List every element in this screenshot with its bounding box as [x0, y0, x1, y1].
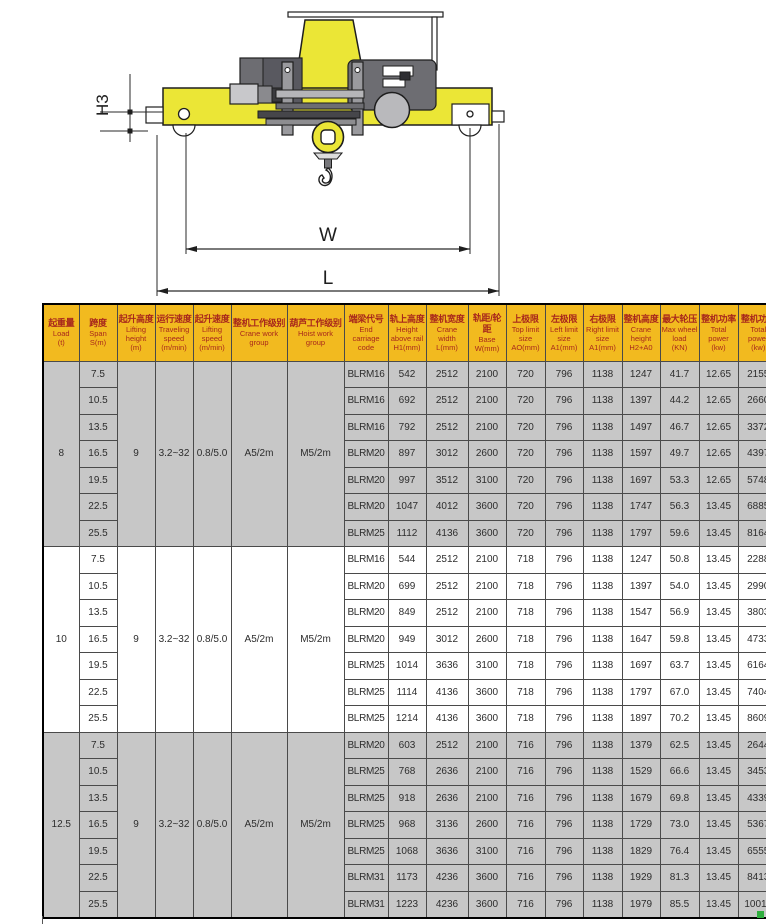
- max-wheel-load-cell: 63.7: [660, 653, 699, 680]
- traveling-speed-cell: 3.2~32: [155, 547, 193, 733]
- crane-spec-table: 起重量Load(t)跨度SpanS(m)起升高度Lifting height(m…: [42, 303, 766, 919]
- top-limit-cell: 718: [506, 679, 545, 706]
- span-cell: 19.5: [79, 838, 117, 865]
- left-limit-cell: 796: [545, 467, 583, 494]
- h1-cell: 544: [388, 547, 426, 574]
- end-carriage-code-cell: BLRM25: [344, 653, 388, 680]
- total-power2-cell: 3453: [738, 759, 766, 786]
- crane-height-cell: 1497: [622, 414, 660, 441]
- top-limit-cell: 716: [506, 865, 545, 892]
- crane-work-group-cell: A5/2m: [231, 732, 287, 918]
- col-header-2: 起升高度Lifting height(m): [117, 304, 155, 361]
- right-limit-cell: 1138: [583, 785, 622, 812]
- crane-width-cell: 3636: [426, 653, 468, 680]
- total-power-cell: 12.65: [699, 361, 738, 388]
- total-power-cell: 13.45: [699, 838, 738, 865]
- total-power2-cell: 8413: [738, 865, 766, 892]
- right-limit-cell: 1138: [583, 706, 622, 733]
- top-limit-cell: 720: [506, 467, 545, 494]
- total-power2-cell: 2990: [738, 573, 766, 600]
- right-limit-cell: 1138: [583, 865, 622, 892]
- left-limit-cell: 796: [545, 361, 583, 388]
- max-wheel-load-cell: 70.2: [660, 706, 699, 733]
- h1-cell: 997: [388, 467, 426, 494]
- span-cell: 16.5: [79, 812, 117, 839]
- col-header-15: 最大轮压Max wheel load(KN): [660, 304, 699, 361]
- end-carriage-code-cell: BLRM20: [344, 573, 388, 600]
- col-header-4: 起升速度Lifting speed(m/min): [193, 304, 231, 361]
- base-cell: 2100: [468, 785, 506, 812]
- lifting-height-cell: 9: [117, 547, 155, 733]
- crane-height-cell: 1929: [622, 865, 660, 892]
- lifting-speed-cell: 0.8/5.0: [193, 361, 231, 547]
- h1-cell: 897: [388, 441, 426, 468]
- col-header-8: 轨上高度Height above railH1(mm): [388, 304, 426, 361]
- left-limit-cell: 796: [545, 441, 583, 468]
- l-label: L: [323, 268, 334, 289]
- left-limit-cell: 796: [545, 732, 583, 759]
- right-limit-cell: 1138: [583, 759, 622, 786]
- span-cell: 22.5: [79, 865, 117, 892]
- crane-height-cell: 1729: [622, 812, 660, 839]
- span-cell: 22.5: [79, 679, 117, 706]
- right-limit-cell: 1138: [583, 891, 622, 918]
- max-wheel-load-cell: 54.0: [660, 573, 699, 600]
- max-wheel-load-cell: 62.5: [660, 732, 699, 759]
- end-carriage-code-cell: BLRM20: [344, 494, 388, 521]
- base-cell: 3600: [468, 891, 506, 918]
- h1-cell: 603: [388, 732, 426, 759]
- right-limit-cell: 1138: [583, 520, 622, 547]
- crane-width-cell: 2512: [426, 547, 468, 574]
- top-limit-cell: 716: [506, 785, 545, 812]
- crane-width-cell: 2636: [426, 785, 468, 812]
- base-cell: 2600: [468, 812, 506, 839]
- table-row: 12.57.593.2~320.8/5.0A5/2mM5/2mBLRM20603…: [43, 732, 766, 759]
- total-power-cell: 12.65: [699, 441, 738, 468]
- base-cell: 3100: [468, 838, 506, 865]
- right-limit-cell: 1138: [583, 812, 622, 839]
- top-limit-cell: 720: [506, 414, 545, 441]
- h1-cell: 1214: [388, 706, 426, 733]
- span-cell: 13.5: [79, 600, 117, 627]
- end-carriage-code-cell: BLRM25: [344, 838, 388, 865]
- col-header-6: 葫芦工作级别Hoist work group: [287, 304, 344, 361]
- left-limit-cell: 796: [545, 838, 583, 865]
- end-carriage-code-cell: BLRM31: [344, 865, 388, 892]
- top-limit-cell: 720: [506, 361, 545, 388]
- right-limit-cell: 1138: [583, 388, 622, 415]
- hook-block: [313, 122, 344, 186]
- right-limit-cell: 1138: [583, 626, 622, 653]
- crane-width-cell: 3636: [426, 838, 468, 865]
- h1-cell: 699: [388, 573, 426, 600]
- crane-height-cell: 1747: [622, 494, 660, 521]
- max-wheel-load-cell: 49.7: [660, 441, 699, 468]
- load-cell-group-1: 10: [43, 547, 79, 733]
- h1-cell: 1114: [388, 679, 426, 706]
- span-cell: 7.5: [79, 547, 117, 574]
- total-power-cell: 13.45: [699, 891, 738, 918]
- end-carriage-code-cell: BLRM25: [344, 520, 388, 547]
- total-power-cell: 13.45: [699, 679, 738, 706]
- scan-artifact-cropline: [42, 916, 43, 924]
- top-limit-cell: 720: [506, 441, 545, 468]
- top-limit-cell: 718: [506, 626, 545, 653]
- crane-height-cell: 1797: [622, 679, 660, 706]
- crane-spec-sheet: H3 W L: [0, 0, 766, 924]
- hoist-motor: [230, 84, 258, 104]
- crane-diagram: H3 W L: [0, 0, 766, 302]
- h1-cell: 768: [388, 759, 426, 786]
- load-cell-group-2: 12.5: [43, 732, 79, 918]
- base-cell: 3600: [468, 520, 506, 547]
- total-power2-cell: 6885: [738, 494, 766, 521]
- top-limit-cell: 716: [506, 759, 545, 786]
- crane-width-cell: 3012: [426, 626, 468, 653]
- max-wheel-load-cell: 85.5: [660, 891, 699, 918]
- right-limit-cell: 1138: [583, 414, 622, 441]
- top-limit-cell: 716: [506, 838, 545, 865]
- span-cell: 7.5: [79, 732, 117, 759]
- h1-cell: 949: [388, 626, 426, 653]
- base-cell: 2100: [468, 547, 506, 574]
- max-wheel-load-cell: 56.9: [660, 600, 699, 627]
- total-power2-cell: 4733: [738, 626, 766, 653]
- total-power2-cell: 4339: [738, 785, 766, 812]
- h1-cell: 1173: [388, 865, 426, 892]
- crane-work-group-cell: A5/2m: [231, 361, 287, 547]
- cable-drum: [375, 93, 410, 128]
- total-power2-cell: 2660: [738, 388, 766, 415]
- crane-width-cell: 2512: [426, 732, 468, 759]
- col-header-14: 整机高度Crane heightH2+A0: [622, 304, 660, 361]
- top-limit-cell: 718: [506, 706, 545, 733]
- dimension-w: W: [186, 225, 470, 252]
- base-cell: 3100: [468, 467, 506, 494]
- total-power2-cell: 4397: [738, 441, 766, 468]
- base-cell: 3100: [468, 653, 506, 680]
- right-limit-cell: 1138: [583, 441, 622, 468]
- total-power2-cell: 2155: [738, 361, 766, 388]
- max-wheel-load-cell: 41.7: [660, 361, 699, 388]
- span-cell: 13.5: [79, 414, 117, 441]
- total-power2-cell: 5367: [738, 812, 766, 839]
- base-cell: 2100: [468, 600, 506, 627]
- left-limit-cell: 796: [545, 706, 583, 733]
- h1-cell: 692: [388, 388, 426, 415]
- left-limit-cell: 796: [545, 494, 583, 521]
- top-limit-cell: 716: [506, 812, 545, 839]
- total-power2-cell: 3803: [738, 600, 766, 627]
- h1-cell: 849: [388, 600, 426, 627]
- top-limit-cell: 720: [506, 520, 545, 547]
- crane-wheel-left: [173, 125, 195, 136]
- base-cell: 2100: [468, 759, 506, 786]
- crane-height-cell: 1397: [622, 573, 660, 600]
- span-cell: 10.5: [79, 388, 117, 415]
- end-carriage-code-cell: BLRM16: [344, 361, 388, 388]
- crane-work-group-cell: A5/2m: [231, 547, 287, 733]
- total-power-cell: 13.45: [699, 706, 738, 733]
- right-limit-cell: 1138: [583, 573, 622, 600]
- total-power-cell: 12.65: [699, 467, 738, 494]
- right-limit-cell: 1138: [583, 361, 622, 388]
- top-limit-cell: 718: [506, 547, 545, 574]
- h1-cell: 1223: [388, 891, 426, 918]
- col-header-12: 左极限Left limit sizeA1(mm): [545, 304, 583, 361]
- top-limit-cell: 716: [506, 732, 545, 759]
- h3-label: H3: [93, 94, 112, 116]
- crane-height-cell: 1379: [622, 732, 660, 759]
- end-carriage-code-cell: BLRM16: [344, 414, 388, 441]
- traveling-speed-cell: 3.2~32: [155, 732, 193, 918]
- max-wheel-load-cell: 67.0: [660, 679, 699, 706]
- total-power-cell: 13.45: [699, 626, 738, 653]
- max-wheel-load-cell: 81.3: [660, 865, 699, 892]
- lifting-height-cell: 9: [117, 732, 155, 918]
- span-cell: 25.5: [79, 891, 117, 918]
- h1-cell: 1068: [388, 838, 426, 865]
- traveling-speed-cell: 3.2~32: [155, 361, 193, 547]
- span-cell: 25.5: [79, 520, 117, 547]
- crane-height-cell: 1397: [622, 388, 660, 415]
- end-carriage-code-cell: BLRM25: [344, 759, 388, 786]
- left-limit-cell: 796: [545, 653, 583, 680]
- crane-width-cell: 4236: [426, 891, 468, 918]
- w-label: W: [319, 225, 337, 246]
- crane-height-cell: 1829: [622, 838, 660, 865]
- crane-width-cell: 4136: [426, 706, 468, 733]
- total-power2-cell: 8609: [738, 706, 766, 733]
- total-power-cell: 13.45: [699, 600, 738, 627]
- col-header-11: 上极限Top limit sizeAO(mm): [506, 304, 545, 361]
- crane-width-cell: 2512: [426, 414, 468, 441]
- base-cell: 3600: [468, 706, 506, 733]
- left-limit-cell: 796: [545, 812, 583, 839]
- h1-cell: 968: [388, 812, 426, 839]
- total-power-cell: 13.45: [699, 547, 738, 574]
- max-wheel-load-cell: 46.7: [660, 414, 699, 441]
- col-header-16: 整机功率Total power(kw): [699, 304, 738, 361]
- total-power-cell: 13.45: [699, 785, 738, 812]
- top-limit-cell: 720: [506, 388, 545, 415]
- total-power-cell: 13.45: [699, 520, 738, 547]
- total-power2-cell: 8164: [738, 520, 766, 547]
- span-cell: 25.5: [79, 706, 117, 733]
- h1-cell: 1112: [388, 520, 426, 547]
- top-limit-cell: 718: [506, 573, 545, 600]
- base-cell: 2600: [468, 626, 506, 653]
- crane-width-cell: 2512: [426, 388, 468, 415]
- crane-width-cell: 4136: [426, 520, 468, 547]
- left-limit-cell: 796: [545, 414, 583, 441]
- total-power-cell: 13.45: [699, 732, 738, 759]
- span-cell: 7.5: [79, 361, 117, 388]
- max-wheel-load-cell: 59.8: [660, 626, 699, 653]
- end-carriage-code-cell: BLRM25: [344, 706, 388, 733]
- end-carriage-code-cell: BLRM25: [344, 785, 388, 812]
- col-header-9: 整机宽度Crane widthL(mm): [426, 304, 468, 361]
- col-header-13: 右极限Right limit sizeA1(mm): [583, 304, 622, 361]
- col-header-0: 起重量Load(t): [43, 304, 79, 361]
- total-power2-cell: 5748: [738, 467, 766, 494]
- max-wheel-load-cell: 69.8: [660, 785, 699, 812]
- col-header-7: 端梁代号End carriage code: [344, 304, 388, 361]
- left-limit-cell: 796: [545, 573, 583, 600]
- crane-width-cell: 2636: [426, 759, 468, 786]
- right-limit-cell: 1138: [583, 494, 622, 521]
- max-wheel-load-cell: 76.4: [660, 838, 699, 865]
- base-cell: 2100: [468, 388, 506, 415]
- crane-height-cell: 1247: [622, 361, 660, 388]
- crane-width-cell: 2512: [426, 600, 468, 627]
- crane-width-cell: 3512: [426, 467, 468, 494]
- total-power-cell: 12.65: [699, 414, 738, 441]
- table-row: 107.593.2~320.8/5.0A5/2mM5/2mBLRM1654425…: [43, 547, 766, 574]
- scan-artifact-green: [757, 911, 764, 918]
- total-power2-cell: 2644: [738, 732, 766, 759]
- hoist-work-group-cell: M5/2m: [287, 361, 344, 547]
- base-cell: 2600: [468, 441, 506, 468]
- crane-width-cell: 3012: [426, 441, 468, 468]
- base-cell: 3600: [468, 679, 506, 706]
- top-limit-cell: 718: [506, 653, 545, 680]
- crane-height-cell: 1247: [622, 547, 660, 574]
- max-wheel-load-cell: 59.6: [660, 520, 699, 547]
- col-header-1: 跨度SpanS(m): [79, 304, 117, 361]
- end-carriage-code-cell: BLRM20: [344, 441, 388, 468]
- crane-width-cell: 4012: [426, 494, 468, 521]
- span-cell: 19.5: [79, 467, 117, 494]
- h1-cell: 542: [388, 361, 426, 388]
- spec-table-section: 起重量Load(t)跨度SpanS(m)起升高度Lifting height(m…: [42, 303, 764, 919]
- hoist-work-group-cell: M5/2m: [287, 547, 344, 733]
- total-power-cell: 13.45: [699, 812, 738, 839]
- crane-width-cell: 4136: [426, 679, 468, 706]
- crane-height-cell: 1597: [622, 441, 660, 468]
- h1-cell: 1014: [388, 653, 426, 680]
- max-wheel-load-cell: 53.3: [660, 467, 699, 494]
- span-cell: 13.5: [79, 785, 117, 812]
- base-cell: 2100: [468, 361, 506, 388]
- top-limit-cell: 716: [506, 891, 545, 918]
- total-power2-cell: 6555: [738, 838, 766, 865]
- end-carriage-code-cell: BLRM25: [344, 679, 388, 706]
- max-wheel-load-cell: 44.2: [660, 388, 699, 415]
- table-header-row: 起重量Load(t)跨度SpanS(m)起升高度Lifting height(m…: [43, 304, 766, 361]
- total-power-cell: 12.65: [699, 388, 738, 415]
- left-limit-cell: 796: [545, 759, 583, 786]
- total-power-cell: 13.45: [699, 759, 738, 786]
- total-power-cell: 13.45: [699, 494, 738, 521]
- span-cell: 16.5: [79, 626, 117, 653]
- right-limit-cell: 1138: [583, 732, 622, 759]
- top-limit-cell: 720: [506, 494, 545, 521]
- end-carriage-code-cell: BLRM31: [344, 891, 388, 918]
- right-limit-cell: 1138: [583, 838, 622, 865]
- crane-height-cell: 1529: [622, 759, 660, 786]
- total-power-cell: 13.45: [699, 865, 738, 892]
- h1-cell: 1047: [388, 494, 426, 521]
- base-cell: 3600: [468, 865, 506, 892]
- left-limit-cell: 796: [545, 626, 583, 653]
- left-limit-cell: 796: [545, 785, 583, 812]
- span-cell: 16.5: [79, 441, 117, 468]
- total-power2-cell: 3372: [738, 414, 766, 441]
- table-row: 87.593.2~320.8/5.0A5/2mM5/2mBLRM16542251…: [43, 361, 766, 388]
- crane-height-cell: 1647: [622, 626, 660, 653]
- col-header-17: 整机功率Total power(kw): [738, 304, 766, 361]
- crane-height-cell: 1547: [622, 600, 660, 627]
- span-cell: 10.5: [79, 759, 117, 786]
- crane-width-cell: 4236: [426, 865, 468, 892]
- crane-width-cell: 3136: [426, 812, 468, 839]
- table-body: 87.593.2~320.8/5.0A5/2mM5/2mBLRM16542251…: [43, 361, 766, 918]
- span-cell: 19.5: [79, 653, 117, 680]
- end-carriage-code-cell: BLRM20: [344, 600, 388, 627]
- load-cell-group-0: 8: [43, 361, 79, 547]
- total-power-cell: 13.45: [699, 573, 738, 600]
- right-limit-cell: 1138: [583, 653, 622, 680]
- crane-height-cell: 1679: [622, 785, 660, 812]
- crane-width-cell: 2512: [426, 573, 468, 600]
- right-limit-cell: 1138: [583, 467, 622, 494]
- hook-icon: [319, 168, 332, 185]
- crane-height-cell: 1897: [622, 706, 660, 733]
- end-carriage-code-cell: BLRM20: [344, 467, 388, 494]
- h1-cell: 918: [388, 785, 426, 812]
- top-limit-cell: 718: [506, 600, 545, 627]
- base-cell: 2100: [468, 732, 506, 759]
- col-header-3: 运行速度Traveling speed(m/min): [155, 304, 193, 361]
- max-wheel-load-cell: 50.8: [660, 547, 699, 574]
- base-cell: 2100: [468, 573, 506, 600]
- col-header-5: 整机工作级别Crane work group: [231, 304, 287, 361]
- total-power2-cell: 6164: [738, 653, 766, 680]
- end-carriage-code-cell: BLRM20: [344, 626, 388, 653]
- max-wheel-load-cell: 66.6: [660, 759, 699, 786]
- span-cell: 22.5: [79, 494, 117, 521]
- base-cell: 3600: [468, 494, 506, 521]
- dimension-l: L: [157, 268, 499, 294]
- col-header-10: 轨距/轮距BaseW(mm): [468, 304, 506, 361]
- end-carriage-code-cell: BLRM16: [344, 388, 388, 415]
- left-limit-cell: 796: [545, 547, 583, 574]
- right-limit-cell: 1138: [583, 679, 622, 706]
- crane-width-cell: 2512: [426, 361, 468, 388]
- total-power2-cell: 2288: [738, 547, 766, 574]
- total-power-cell: 13.45: [699, 653, 738, 680]
- left-limit-cell: 796: [545, 388, 583, 415]
- lifting-height-cell: 9: [117, 361, 155, 547]
- max-wheel-load-cell: 56.3: [660, 494, 699, 521]
- hoist-work-group-cell: M5/2m: [287, 732, 344, 918]
- end-carriage-code-cell: BLRM20: [344, 732, 388, 759]
- crane-height-cell: 1697: [622, 653, 660, 680]
- end-carriage-code-cell: BLRM25: [344, 812, 388, 839]
- total-power2-cell: 7404: [738, 679, 766, 706]
- base-cell: 2100: [468, 414, 506, 441]
- crane-height-cell: 1697: [622, 467, 660, 494]
- max-wheel-load-cell: 73.0: [660, 812, 699, 839]
- lifting-speed-cell: 0.8/5.0: [193, 547, 231, 733]
- h1-cell: 792: [388, 414, 426, 441]
- left-limit-cell: 796: [545, 865, 583, 892]
- left-limit-cell: 796: [545, 679, 583, 706]
- left-limit-cell: 796: [545, 520, 583, 547]
- end-carriage-code-cell: BLRM16: [344, 547, 388, 574]
